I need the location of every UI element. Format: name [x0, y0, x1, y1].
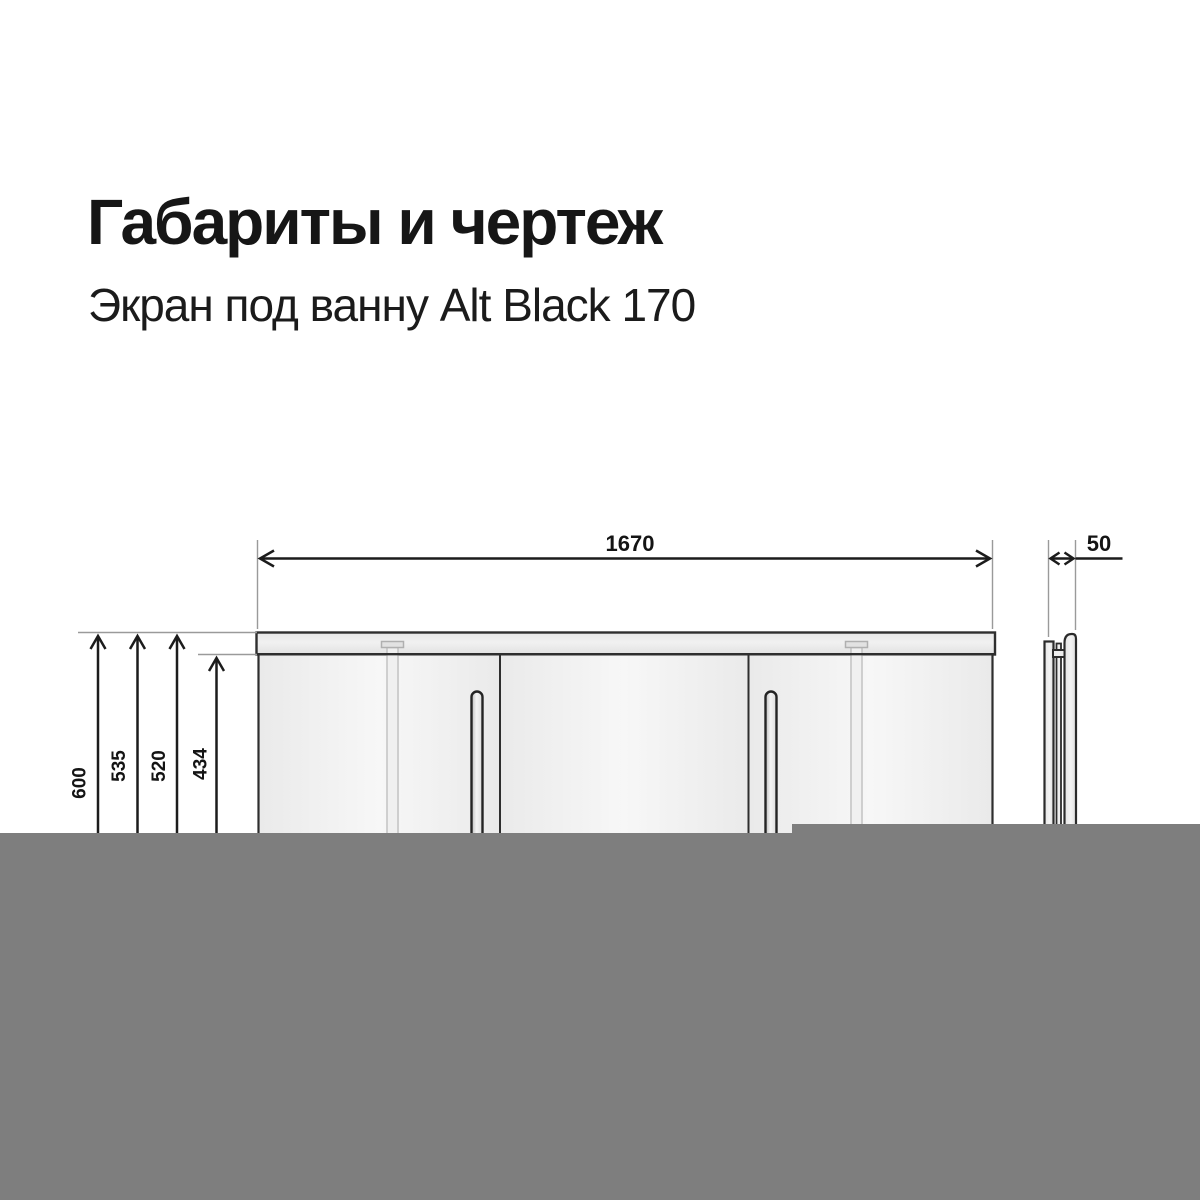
- side-bridge: [1053, 650, 1065, 657]
- dimension-depth-label: 50: [1087, 531, 1111, 556]
- handle-slot-right: [766, 692, 777, 842]
- crop-overlay: [0, 824, 1200, 1200]
- leg-left-cap: [382, 642, 404, 648]
- leg-right-cap: [846, 642, 868, 648]
- dimension-heights: 600 535 520 434: [70, 633, 258, 846]
- dimension-height-label-535: 535: [109, 750, 130, 782]
- front-panel-right: [749, 656, 993, 841]
- dimension-width-label: 1670: [606, 531, 655, 556]
- dimension-depth: 50: [1049, 531, 1123, 637]
- side-inner-bar: [1057, 644, 1062, 832]
- crop-overlay-right: [792, 824, 1200, 1200]
- front-panel-left: [259, 656, 500, 841]
- dimension-width: 1670: [258, 531, 993, 629]
- leg-right-rod: [851, 648, 862, 841]
- technical-drawing: 1670 50 600 535 520 434: [0, 0, 1200, 1200]
- crop-overlay-left: [0, 833, 792, 1200]
- side-rail-profile: [1065, 634, 1077, 831]
- handle-slot-left: [472, 692, 483, 842]
- front-top-rail: [257, 633, 996, 655]
- dimension-height-label-600: 600: [70, 767, 91, 799]
- dimension-height-label-434: 434: [191, 748, 212, 780]
- front-view: [257, 633, 996, 842]
- front-panel-middle: [500, 656, 749, 841]
- side-view: [1045, 634, 1077, 832]
- side-panel-bar: [1045, 642, 1054, 832]
- dimension-height-label-520: 520: [149, 750, 170, 782]
- leg-left-rod: [387, 648, 398, 841]
- page: Габариты и чертеж Экран под ванну Alt Bl…: [0, 0, 1200, 1200]
